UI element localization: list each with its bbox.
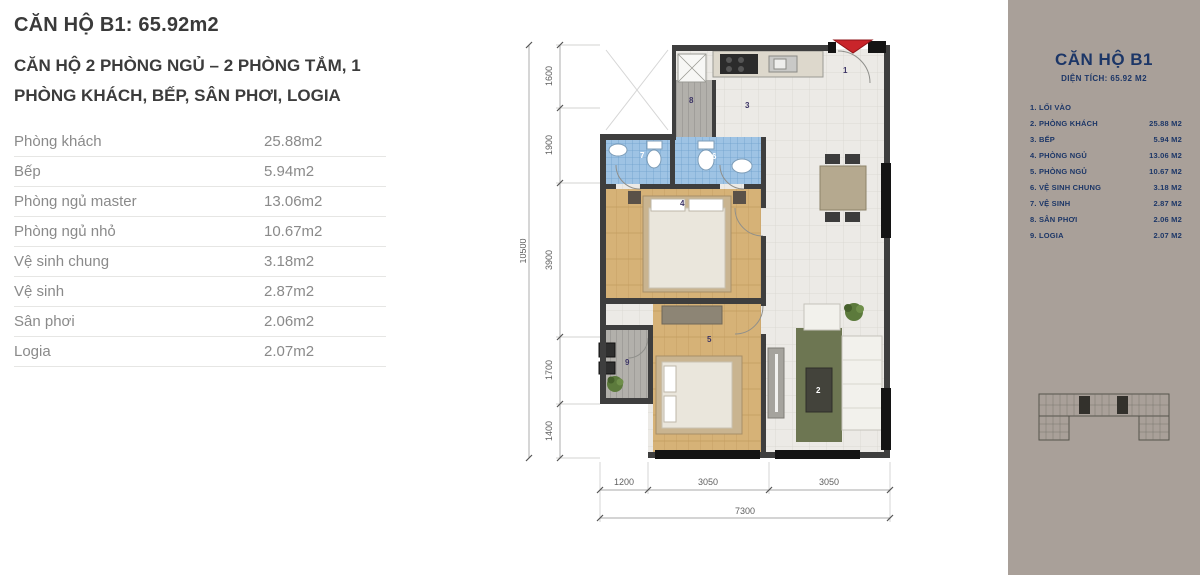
legend-label: 1. LỐI VÀO	[1030, 103, 1182, 112]
sidebar-area-subtitle: DIỆN TÍCH: 65.92 M2	[1008, 74, 1200, 83]
key-plan-highlight-unit	[1117, 396, 1128, 414]
table-row: Phòng khách 25.88m2	[14, 127, 386, 157]
table-row: Vệ sinh 2.87m2	[14, 277, 386, 307]
room-number: 2	[816, 386, 821, 395]
room-label: Vệ sinh	[14, 283, 264, 300]
dimension-label: 3900	[544, 250, 554, 270]
chair	[845, 212, 860, 222]
dimension-label: 1400	[544, 421, 554, 441]
table-row: Vệ sinh chung 3.18m2	[14, 247, 386, 277]
dining-table	[820, 166, 866, 210]
legend-area: 2.07 M2	[1154, 231, 1183, 240]
room-area: 25.88m2	[264, 133, 386, 150]
legend-item: 9. LOGIA2.07 M2	[1030, 227, 1182, 243]
table-row: Bếp 5.94m2	[14, 157, 386, 187]
floor-plan: 1 2 3 4 5 6 7 8 9	[520, 38, 900, 538]
dimension-label: 1600	[544, 66, 554, 86]
table-row: Phòng ngủ master 13.06m2	[14, 187, 386, 217]
room-number: 3	[745, 101, 750, 110]
room-area: 10.67m2	[264, 223, 386, 240]
sink	[732, 159, 752, 173]
chair	[825, 154, 840, 164]
legend-area: 2.87 M2	[1154, 199, 1183, 208]
legend-area: 5.94 M2	[1154, 135, 1183, 144]
legend-item: 3. BẾP5.94 M2	[1030, 131, 1182, 147]
room-area: 5.94m2	[264, 163, 386, 180]
nightstand	[733, 191, 746, 204]
sink	[609, 144, 627, 156]
dimension-label: 3050	[698, 477, 718, 487]
room-area: 13.06m2	[264, 193, 386, 210]
room-label: Phòng khách	[14, 133, 264, 150]
unit-summary-panel: CĂN HỘ B1: 65.92m2 CĂN HỘ 2 PHÒNG NGỦ – …	[14, 14, 398, 367]
toilet	[647, 150, 661, 168]
legend-area: 3.18 M2	[1154, 183, 1183, 192]
armchair	[804, 304, 840, 330]
room-area: 2.06m2	[264, 313, 386, 330]
dimension-label: 7300	[735, 506, 755, 516]
legend-area: 13.06 M2	[1149, 151, 1182, 160]
key-plan-diagram	[1029, 388, 1179, 446]
room-number: 4	[680, 199, 685, 208]
info-sidebar: CĂN HỘ B1 DIỆN TÍCH: 65.92 M2 1. LỐI VÀO…	[1008, 0, 1200, 575]
room-area: 2.07m2	[264, 343, 386, 360]
room-area-table: Phòng khách 25.88m2 Bếp 5.94m2 Phòng ngủ…	[14, 127, 386, 367]
dimension-label: 10500	[520, 238, 528, 263]
legend-label: 2. PHÒNG KHÁCH	[1030, 119, 1149, 128]
table-row: Sân phơi 2.06m2	[14, 307, 386, 337]
room-number: 5	[707, 335, 712, 344]
table-row: Logia 2.07m2	[14, 337, 386, 367]
wardrobe	[662, 306, 722, 324]
floor-plan-drawing: 1 2 3 4 5 6 7 8 9	[520, 38, 900, 538]
key-plan-highlight-unit	[1079, 396, 1090, 414]
legend-item: 4. PHÒNG NGỦ13.06 M2	[1030, 147, 1182, 163]
chair	[825, 212, 840, 222]
dimension-label: 1900	[544, 135, 554, 155]
room-label: Bếp	[14, 163, 264, 180]
legend-label: 5. PHÒNG NGỦ	[1030, 167, 1149, 176]
dimension-label: 3050	[819, 477, 839, 487]
nightstand	[628, 191, 641, 204]
room-number: 8	[689, 96, 694, 105]
legend-item: 2. PHÒNG KHÁCH25.88 M2	[1030, 115, 1182, 131]
legend-item: 1. LỐI VÀO	[1030, 99, 1182, 115]
room-label: Vệ sinh chung	[14, 253, 264, 270]
table-row: Phòng ngủ nhỏ 10.67m2	[14, 217, 386, 247]
legend-area: 2.06 M2	[1154, 215, 1183, 224]
legend-area: 25.88 M2	[1149, 119, 1182, 128]
legend-label: 8. SÂN PHƠI	[1030, 215, 1154, 224]
room-label: Phòng ngủ nhỏ	[14, 223, 264, 240]
room-label: Phòng ngủ master	[14, 193, 264, 210]
dimension-label: 1700	[544, 360, 554, 380]
legend-label: 4. PHÒNG NGỦ	[1030, 151, 1149, 160]
legend-label: 7. VỆ SINH	[1030, 199, 1154, 208]
room-label: Logia	[14, 343, 264, 360]
legend-list: 1. LỐI VÀO 2. PHÒNG KHÁCH25.88 M2 3. BẾP…	[1030, 99, 1182, 243]
room-number: 9	[625, 358, 630, 367]
room-label: Sân phơi	[14, 313, 264, 330]
legend-area: 10.67 M2	[1149, 167, 1182, 176]
sofa	[842, 336, 882, 430]
page: CĂN HỘ B1: 65.92m2 CĂN HỘ 2 PHÒNG NGỦ – …	[0, 0, 1200, 575]
drying-yard-floor	[676, 80, 712, 137]
legend-item: 6. VỆ SINH CHUNG3.18 M2	[1030, 179, 1182, 195]
outside-area	[598, 404, 648, 460]
sidebar-unit-title: CĂN HỘ B1	[1008, 50, 1200, 70]
room-number: 1	[843, 66, 848, 75]
unit-description: CĂN HỘ 2 PHÒNG NGỦ – 2 PHÒNG TẮM, 1 PHÒN…	[14, 51, 398, 111]
room-number: 7	[640, 151, 645, 160]
legend-item: 5. PHÒNG NGỦ10.67 M2	[1030, 163, 1182, 179]
room-area: 3.18m2	[264, 253, 386, 270]
legend-label: 3. BẾP	[1030, 135, 1154, 144]
legend-label: 9. LOGIA	[1030, 231, 1154, 240]
legend-label: 6. VỆ SINH CHUNG	[1030, 183, 1154, 192]
legend-item: 8. SÂN PHƠI2.06 M2	[1030, 211, 1182, 227]
unit-title: CĂN HỘ B1: 65.92m2	[14, 14, 398, 37]
chair	[845, 154, 860, 164]
legend-item: 7. VỆ SINH2.87 M2	[1030, 195, 1182, 211]
room-area: 2.87m2	[264, 283, 386, 300]
dimension-label: 1200	[614, 477, 634, 487]
room-number: 6	[712, 152, 717, 161]
